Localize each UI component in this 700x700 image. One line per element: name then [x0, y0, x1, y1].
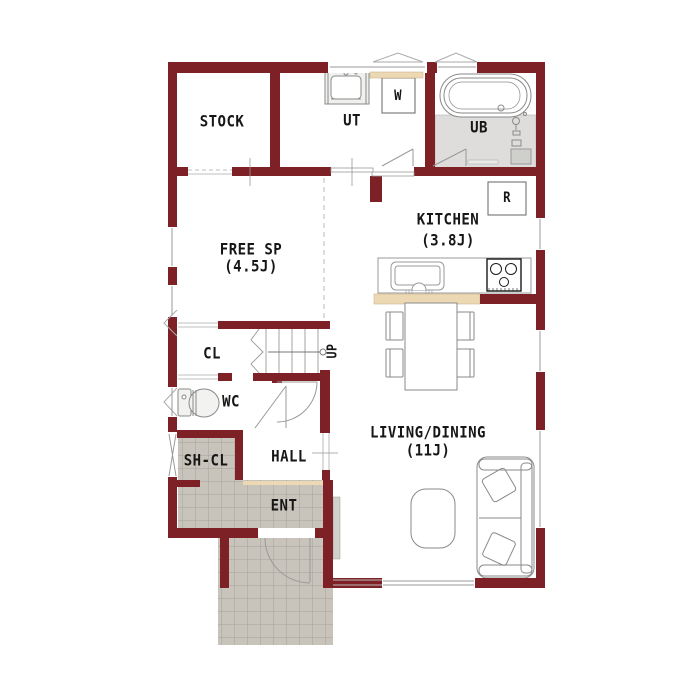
stairs	[251, 329, 330, 373]
room-label-cl: CL	[203, 344, 221, 363]
fridge-label: R	[503, 190, 511, 206]
washbasin	[325, 70, 369, 104]
entry-cabinet	[333, 497, 340, 559]
coffee-table	[411, 489, 455, 548]
sofa	[477, 457, 534, 578]
stove	[487, 259, 521, 291]
room-label-ub: UB	[470, 118, 488, 137]
floor-plan: STOCK UT W UB KITCHEN (3.8J) R FREE SP (…	[0, 0, 700, 700]
room-label-ent: ENT	[271, 496, 298, 515]
bathtub	[440, 74, 531, 117]
toilet	[178, 389, 219, 417]
porch-tile	[218, 538, 333, 645]
room-size-living: (11J)	[406, 441, 451, 460]
entrance-step-edge	[243, 481, 330, 485]
room-label-sh-cl: SH-CL	[184, 451, 229, 470]
room-label-wc: WC	[222, 392, 240, 411]
room-label-kitchen: KITCHEN	[417, 210, 479, 229]
room-size-kitchen: (3.8J)	[421, 231, 475, 250]
room-label-ut: UT	[343, 111, 361, 130]
room-label-living: LIVING/DINING	[370, 423, 486, 442]
washer-label: W	[394, 88, 402, 104]
dining-table	[405, 303, 457, 390]
stairs-up-label: UP	[326, 344, 341, 359]
room-label-hall: HALL	[271, 447, 307, 466]
entrance-tile-floor	[178, 432, 330, 528]
room-label-stock: STOCK	[200, 112, 245, 131]
floor-plan-drawing	[0, 0, 700, 700]
room-size-free-sp: (4.5J)	[224, 257, 278, 276]
kitchen-sink	[391, 262, 444, 294]
